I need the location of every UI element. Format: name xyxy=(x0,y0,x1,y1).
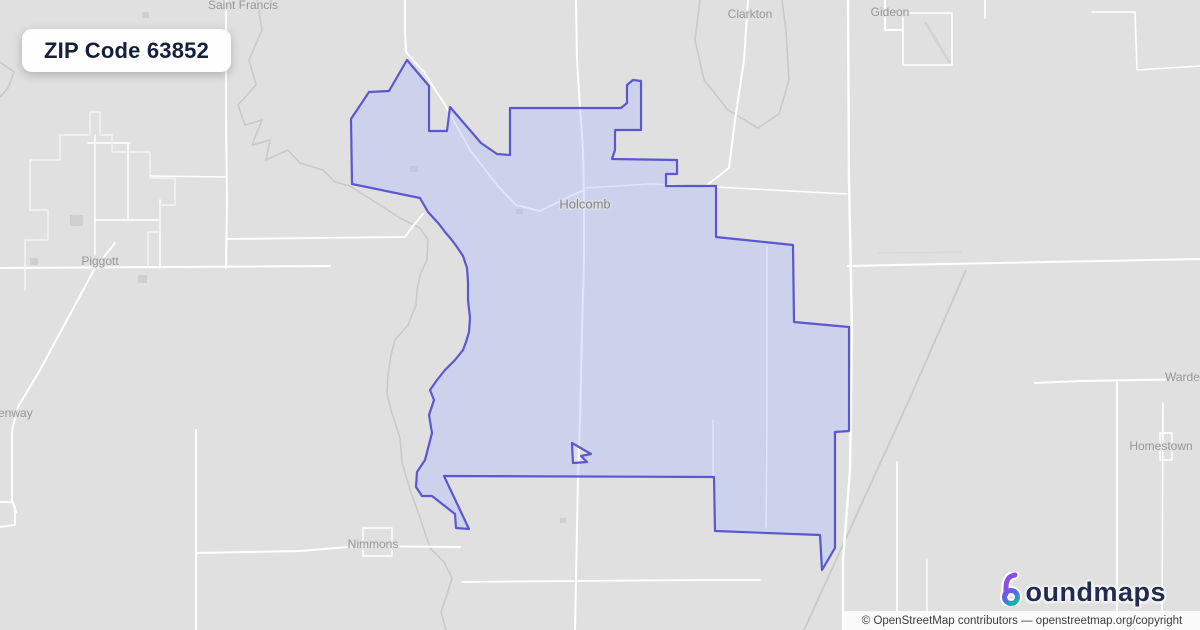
road xyxy=(405,0,406,52)
boundmaps-droplet-b-icon xyxy=(998,572,1024,606)
road xyxy=(1092,12,1200,70)
zip-boundary-polygon[interactable] xyxy=(351,60,849,570)
zip-code-badge: ZIP Code 63852 xyxy=(22,29,231,72)
road xyxy=(196,546,460,553)
attribution-bar: © OpenStreetMap contributors — openstree… xyxy=(844,611,1200,630)
road xyxy=(0,502,15,527)
road xyxy=(575,477,578,630)
attribution-link[interactable]: © OpenStreetMap contributors — openstree… xyxy=(862,615,1182,627)
road xyxy=(0,266,330,268)
river-line xyxy=(0,62,14,97)
map-svg[interactable]: Saint FrancisClarktonGideonPiggottGreenw… xyxy=(0,0,1200,630)
road xyxy=(848,259,1200,266)
zip-boundary-layer xyxy=(351,60,849,570)
river-line xyxy=(925,22,950,63)
zip-code-badge-label: ZIP Code 63852 xyxy=(44,38,209,64)
place-label: Nimmons xyxy=(348,537,399,551)
road xyxy=(12,243,115,512)
map-viewport[interactable]: Saint FrancisClarktonGideonPiggottGreenw… xyxy=(0,0,1200,630)
river-line xyxy=(878,252,962,253)
place-label: Holcomb xyxy=(559,196,610,211)
boundmaps-wordmark: oundmaps xyxy=(1025,579,1166,606)
place-label: Homestown xyxy=(1129,439,1192,453)
building xyxy=(560,518,566,523)
place-label: Saint Francis xyxy=(208,0,278,12)
place-label: Gideon xyxy=(871,5,910,19)
place-label: Wardell xyxy=(1165,370,1200,384)
road xyxy=(903,13,952,65)
road xyxy=(462,580,760,582)
boundmaps-logo[interactable]: oundmaps xyxy=(998,572,1166,606)
place-label: Piggott xyxy=(81,254,119,268)
road xyxy=(226,214,423,239)
building xyxy=(70,215,83,226)
building xyxy=(138,275,147,283)
place-label: Greenway xyxy=(0,406,33,420)
road xyxy=(150,176,226,177)
place-label: Clarkton xyxy=(728,7,773,21)
building xyxy=(142,12,149,18)
building xyxy=(30,258,38,265)
road xyxy=(706,0,748,186)
